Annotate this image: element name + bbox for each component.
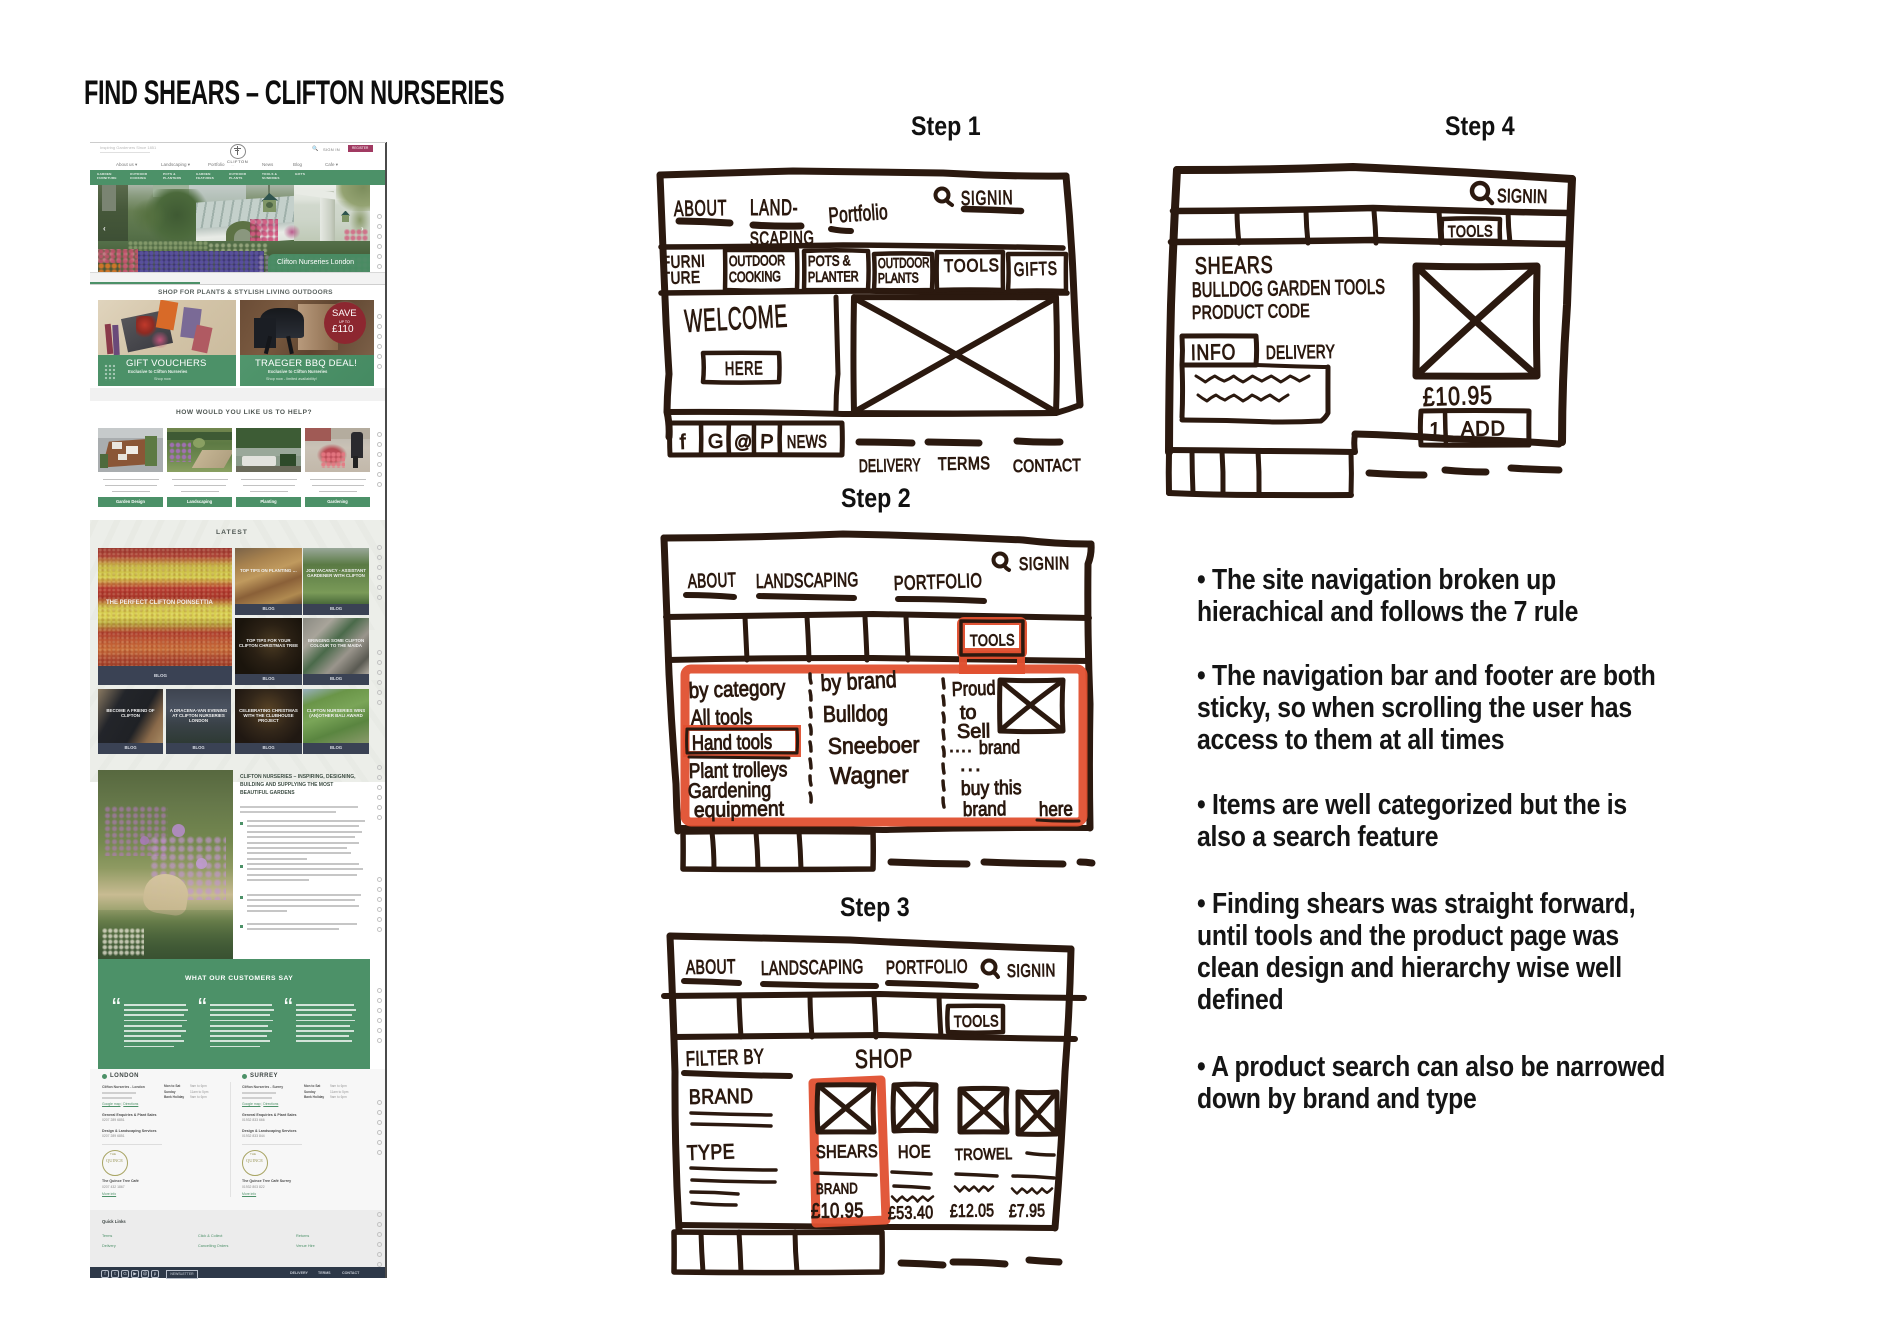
svg-text:TOOLS: TOOLS	[1448, 223, 1493, 241]
svg-text:ABOUT: ABOUT	[686, 955, 736, 979]
svg-text:TOOLS: TOOLS	[970, 632, 1015, 650]
svg-text:FILTER BY: FILTER BY	[685, 1044, 764, 1071]
svg-text:PLANTS: PLANTS	[878, 270, 919, 287]
svg-text:DELIVERY: DELIVERY	[859, 456, 921, 477]
svg-text:@: @	[734, 432, 752, 452]
svg-text:Portfolio: Portfolio	[828, 200, 889, 228]
svg-text:BULLDOG GARDEN TOOLS: BULLDOG GARDEN TOOLS	[1192, 275, 1386, 302]
svg-text:SHEARS: SHEARS	[816, 1142, 878, 1163]
svg-text:TURE: TURE	[661, 268, 700, 288]
svg-text:SHEARS: SHEARS	[1195, 252, 1274, 279]
svg-text:£10.95: £10.95	[811, 1199, 864, 1223]
svg-text:GIFTS: GIFTS	[1013, 257, 1058, 280]
svg-text:ADD: ADD	[1461, 417, 1506, 441]
svg-text:Bulldog: Bulldog	[823, 700, 889, 727]
svg-text:TROWEL: TROWEL	[955, 1146, 1013, 1164]
svg-text:SIGNIN: SIGNIN	[1497, 185, 1548, 207]
svg-text:Proud: Proud	[951, 676, 995, 700]
svg-text:COOKING: COOKING	[729, 268, 781, 286]
svg-text:...: ...	[960, 754, 983, 776]
svg-text:WELCOME: WELCOME	[683, 298, 788, 340]
svg-text:LANDSCAPING: LANDSCAPING	[761, 955, 864, 980]
svg-text:£10.95: £10.95	[1422, 381, 1493, 413]
svg-text:equipment: equipment	[694, 798, 785, 822]
svg-text:Wagner: Wagner	[830, 761, 910, 789]
svg-text:by category: by category	[688, 676, 786, 703]
svg-text:PRODUCT CODE: PRODUCT CODE	[1192, 300, 1310, 324]
svg-text:G: G	[708, 431, 724, 453]
svg-text:OUTDOOR: OUTDOOR	[878, 254, 930, 271]
svg-text:P: P	[760, 431, 774, 453]
svg-text:HOE: HOE	[898, 1142, 932, 1162]
svg-text:PLANTER: PLANTER	[808, 268, 859, 286]
svg-text:PORTFOLIO: PORTFOLIO	[893, 569, 982, 595]
svg-text:LANDSCAPING: LANDSCAPING	[756, 568, 859, 593]
svg-text:1: 1	[1429, 419, 1441, 441]
svg-text:buy this: buy this	[961, 776, 1022, 799]
svg-text:NEWS: NEWS	[787, 432, 828, 452]
svg-text:f: f	[679, 431, 686, 454]
svg-text:SHOP: SHOP	[855, 1043, 914, 1073]
svg-text:£7.95: £7.95	[1009, 1201, 1046, 1222]
svg-text:SIGNIN: SIGNIN	[1007, 961, 1056, 981]
svg-text:£12.05: £12.05	[950, 1201, 995, 1222]
svg-text:INFO: INFO	[1191, 340, 1237, 365]
svg-text:BRAND: BRAND	[816, 1180, 858, 1197]
svg-text:....: ....	[949, 736, 973, 756]
svg-text:ABOUT: ABOUT	[687, 569, 736, 593]
svg-text:BRAND: BRAND	[689, 1085, 754, 1110]
svg-text:CONTACT: CONTACT	[1013, 456, 1082, 476]
svg-text:TERMS: TERMS	[938, 454, 991, 475]
svg-text:Sneeboer: Sneeboer	[828, 732, 920, 760]
svg-text:brand: brand	[963, 797, 1007, 820]
svg-text:TOOLS: TOOLS	[944, 255, 1000, 276]
svg-text:£53.40: £53.40	[888, 1203, 934, 1224]
svg-text:LAND-: LAND-	[750, 195, 798, 220]
svg-text:ABOUT: ABOUT	[674, 195, 728, 221]
svg-text:PORTFOLIO: PORTFOLIO	[886, 955, 968, 978]
svg-text:POTS &: POTS &	[808, 252, 851, 269]
svg-text:brand: brand	[979, 736, 1021, 758]
svg-text:DELIVERY: DELIVERY	[1266, 341, 1335, 364]
svg-text:Hand tools: Hand tools	[692, 731, 773, 756]
svg-text:by brand: by brand	[820, 667, 897, 697]
svg-text:HERE: HERE	[725, 358, 764, 380]
svg-text:TYPE: TYPE	[686, 1140, 735, 1165]
svg-text:here: here	[1039, 797, 1073, 820]
svg-text:SIGNIN: SIGNIN	[1019, 554, 1070, 575]
svg-text:TOOLS: TOOLS	[954, 1013, 999, 1031]
